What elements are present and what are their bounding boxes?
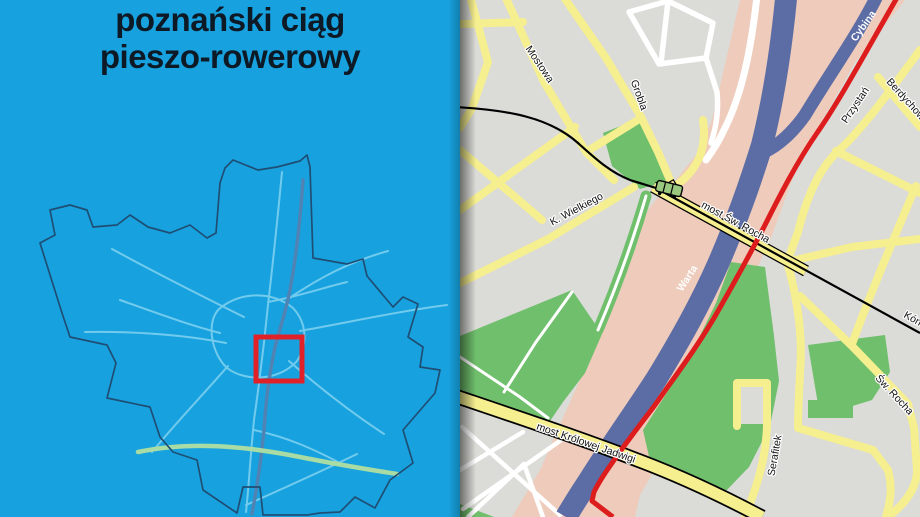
- page-title: poznański ciąg pieszo-rowerowy: [0, 1, 460, 75]
- overview-roads: [85, 172, 447, 512]
- city-boundary: [40, 155, 440, 515]
- fold-shadow-left: [448, 0, 460, 517]
- fold-shadow-right: [460, 0, 476, 517]
- map-leaflet: poznański ciąg pieszo-rowerowy: [0, 0, 920, 517]
- street-detail-map: Mostowa Grobla Cybina Przystań Berdychow…: [460, 0, 920, 517]
- overview-panel: poznański ciąg pieszo-rowerowy: [0, 0, 460, 517]
- title-line-2: pieszo-rowerowy: [0, 38, 460, 75]
- park-east-block-2: [808, 400, 853, 418]
- overview-motorway-line: [138, 446, 397, 474]
- city-overview-map: [0, 0, 460, 517]
- title-line-1: poznański ciąg: [0, 1, 460, 38]
- overview-river-warta: [252, 180, 303, 514]
- block-in-east-park: [741, 384, 764, 424]
- detail-panel: Mostowa Grobla Cybina Przystań Berdychow…: [460, 0, 920, 517]
